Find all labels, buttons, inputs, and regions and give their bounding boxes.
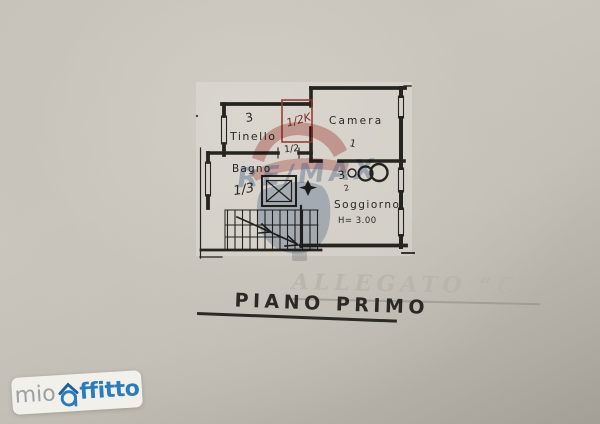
room-label-camera: Camera [329, 115, 383, 127]
room-label-bagno: Bagno [232, 163, 271, 175]
mioaffitto-prefix-text: mio [14, 381, 56, 408]
room-label-soggiorno: Soggiorno [334, 199, 400, 211]
soggiorno-height: H= 3.00 [338, 216, 377, 226]
mioaffitto-logo: mio ffitto [11, 370, 143, 415]
mioaffitto-suffix-text: ffitto [79, 376, 140, 405]
paper-speck [196, 115, 198, 117]
mioaffitto-house-a-icon [57, 381, 79, 407]
plan-paper-inset [196, 82, 412, 256]
photographed-floorplan-page: 3 Tinello Camera 1 1/2K 1/2 Bagno 1/3 3 … [0, 0, 600, 424]
corridor-fraction: 1/2 [283, 143, 299, 155]
floorplan-drawing: 3 Tinello Camera 1 1/2K 1/2 Bagno 1/3 3 … [0, 0, 600, 424]
room-label-tinello: Tinello [229, 130, 277, 143]
